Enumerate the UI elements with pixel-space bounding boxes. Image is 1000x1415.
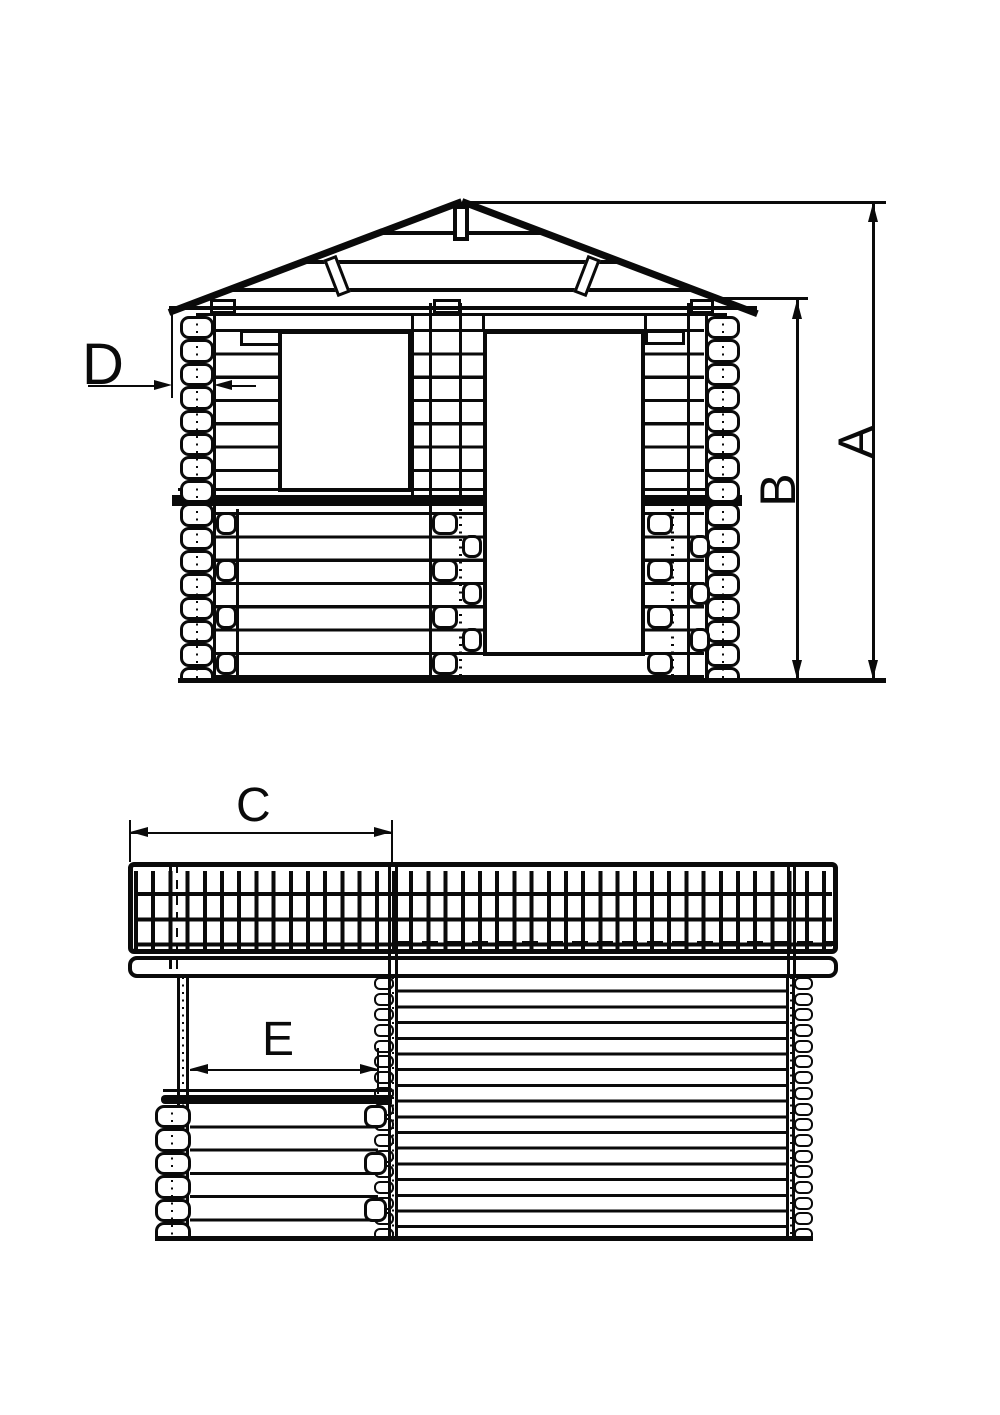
- railing-left-centerline: [171, 1105, 173, 1238]
- dimension-e-label: E: [262, 1016, 294, 1064]
- side-elevation-view: C E: [0, 730, 1000, 1415]
- door-right-post-centerline: [671, 509, 674, 680]
- door-left-post-centerline: [459, 509, 462, 680]
- wall-start-line-b: [395, 862, 398, 978]
- front-elevation-view: D B A: [0, 0, 1000, 730]
- dimension-d-leader-left: [88, 385, 158, 388]
- door-right-log-ends: [647, 512, 673, 680]
- hidden-wall-top-dashed-line: [397, 941, 833, 946]
- log-cabin-technical-drawing: D B A C: [0, 0, 1000, 1415]
- dimension-d-leader-right: [232, 385, 256, 388]
- dimension-d-arrow-right: [154, 380, 172, 390]
- dimension-a-extension-line: [466, 201, 886, 204]
- rear-wall-line-b: [793, 862, 796, 978]
- side-wall-logs: [397, 977, 789, 1238]
- dimension-b-label: B: [746, 458, 810, 522]
- dimension-c-arrow-left: [130, 827, 148, 837]
- dimension-d-extension-line: [171, 312, 174, 398]
- lower-left-log-ends: [216, 512, 237, 680]
- dimension-e-arrow-right: [360, 1064, 378, 1074]
- dimension-c-line: [130, 832, 392, 835]
- dimension-e-extension-right: [377, 1048, 380, 1094]
- porch-edge-dashed-line-a: [169, 864, 172, 976]
- door-opening: [483, 330, 645, 656]
- window-lintel-notch: [240, 330, 281, 346]
- dimension-a-label: A: [824, 410, 888, 474]
- dimension-b-arrow-bottom: [792, 660, 802, 679]
- handrail-top-line: [163, 1089, 392, 1092]
- dimension-a-arrow-top: [868, 203, 878, 222]
- wall-start-line-a: [388, 862, 391, 978]
- roof-purlin-3: [227, 288, 697, 292]
- railing-right-log-ends: [364, 1105, 387, 1238]
- rear-wall-log-ends: [794, 977, 813, 1238]
- eave-beam-line: [169, 306, 757, 310]
- rear-wall-face-line-a: [786, 977, 789, 1238]
- dimension-c-arrow-right: [374, 827, 392, 837]
- side-baseline: [155, 1236, 813, 1241]
- porch-wall-boundary-centerline: [392, 977, 394, 1238]
- door-right-log-ends-offset: [690, 535, 710, 680]
- dimension-b-arrow-top: [792, 300, 802, 319]
- porch-wall-boundary-line-a: [388, 977, 391, 1238]
- rear-wall-face-line-b: [792, 977, 795, 1238]
- left-corner-centerline: [196, 316, 199, 680]
- roof-slope-right: [461, 198, 759, 317]
- handrail-band: [161, 1095, 392, 1104]
- sill-band: [172, 495, 742, 506]
- porch-edge-dashed-line-b: [176, 864, 179, 976]
- porch-wall-boundary-line-b: [395, 977, 398, 1238]
- dimension-e-arrow-left: [190, 1064, 208, 1074]
- dimension-e-line: [190, 1069, 378, 1072]
- door-lintel-notch: [645, 330, 685, 345]
- dimension-a-arrow-bottom: [868, 660, 878, 679]
- railing-logs: [190, 1105, 378, 1236]
- roof-plank-grid: [134, 871, 832, 949]
- dimension-d-arrow-left: [214, 380, 232, 390]
- roof-slope-left: [168, 198, 463, 315]
- front-baseline: [178, 678, 886, 683]
- rear-wall-centerline: [790, 977, 792, 1238]
- rear-wall-line-a: [787, 862, 790, 978]
- door-left-log-ends: [432, 512, 458, 680]
- window-opening: [278, 330, 412, 492]
- railing-left-log-ends: [155, 1105, 191, 1238]
- dimension-c-label: C: [236, 782, 271, 830]
- door-left-log-ends-offset: [462, 535, 482, 680]
- center-post-right-line: [459, 303, 462, 506]
- fascia-board: [128, 956, 838, 978]
- roof-apex-batten: [453, 205, 469, 241]
- wall-top-line: [196, 313, 727, 316]
- roof-purlin-2: [301, 260, 623, 264]
- right-corner-centerline: [722, 316, 725, 680]
